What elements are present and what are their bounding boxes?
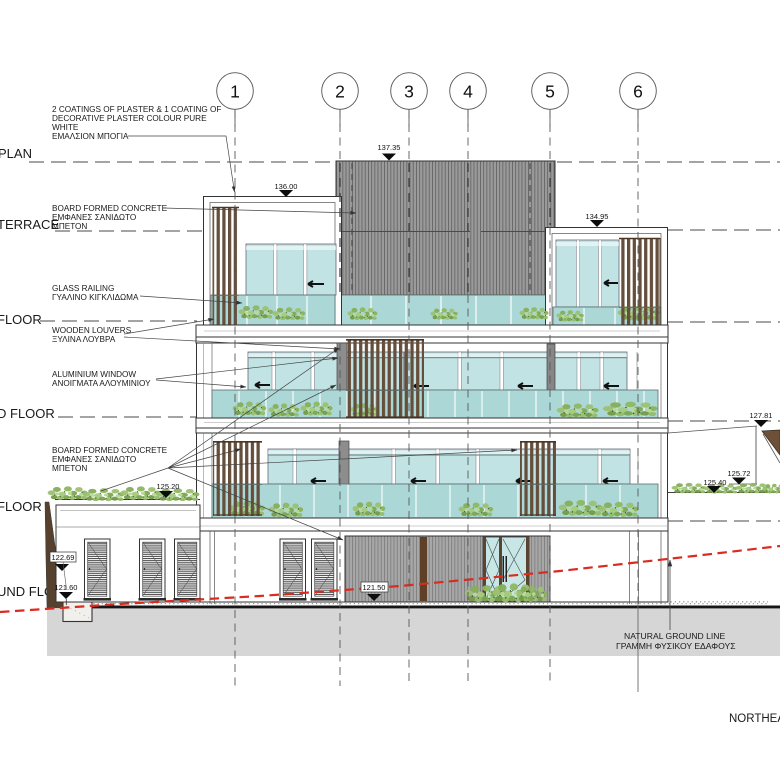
svg-text:ΕΜΦΑΝΕΣ ΣΑΝΙΔΩΤΟ: ΕΜΦΑΝΕΣ ΣΑΝΙΔΩΤΟ	[52, 455, 136, 464]
svg-text:ΓΡΑΜΜΗ ΦΥΣΙΚΟΥ ΕΔΑΦΟΥΣ: ΓΡΑΜΜΗ ΦΥΣΙΚΟΥ ΕΔΑΦΟΥΣ	[616, 641, 736, 651]
svg-text:ΜΠΕΤΟΝ: ΜΠΕΤΟΝ	[52, 222, 87, 231]
svg-text:6: 6	[633, 82, 643, 102]
svg-text:125.40: 125.40	[704, 478, 727, 487]
svg-text:D FLOOR: D FLOOR	[0, 406, 55, 421]
svg-text:5: 5	[545, 82, 555, 102]
svg-text:GLASS RAILING: GLASS RAILING	[52, 284, 114, 293]
svg-text:ΕΜΑΛΣΙΟΝ ΜΠΟΓΙΑ: ΕΜΑΛΣΙΟΝ ΜΠΟΓΙΑ	[52, 132, 129, 141]
svg-text:ΞΥΛΙΝΑ ΛΟΥΒΡΑ: ΞΥΛΙΝΑ ΛΟΥΒΡΑ	[52, 335, 116, 344]
svg-text:1: 1	[230, 82, 240, 102]
svg-text:ΑΝΟΙΓΜΑΤΑ ΑΛΟΥΜΙΝΙΟΥ: ΑΝΟΙΓΜΑΤΑ ΑΛΟΥΜΙΝΙΟΥ	[52, 379, 151, 388]
svg-text:NATURAL GROUND LINE: NATURAL GROUND LINE	[624, 631, 725, 641]
svg-text:4: 4	[463, 82, 473, 102]
svg-text:121.50: 121.50	[363, 583, 386, 592]
svg-text:122.69: 122.69	[52, 553, 75, 562]
svg-text:FLOOR: FLOOR	[0, 312, 42, 327]
svg-text:136.00: 136.00	[275, 182, 298, 191]
svg-text:3: 3	[404, 82, 414, 102]
svg-text:BOARD FORMED CONCRETE: BOARD FORMED CONCRETE	[52, 446, 168, 455]
svg-text:137.35: 137.35	[378, 143, 401, 152]
svg-text:DECORATIVE PLASTER COLOUR PURE: DECORATIVE PLASTER COLOUR PURE	[52, 114, 207, 123]
svg-text:127.81: 127.81	[750, 411, 773, 420]
svg-text:121.60: 121.60	[55, 583, 78, 592]
svg-text:BOARD FORMED CONCRETE: BOARD FORMED CONCRETE	[52, 204, 168, 213]
svg-text:PLAN: PLAN	[0, 146, 32, 161]
svg-text:WOODEN LOUVERS: WOODEN LOUVERS	[52, 326, 132, 335]
svg-text:NORTHEAST: NORTHEAST	[729, 713, 780, 725]
svg-text:WHITE: WHITE	[52, 123, 79, 132]
svg-text:125.72: 125.72	[728, 469, 751, 478]
svg-text:134.95: 134.95	[586, 212, 609, 221]
svg-text:ΕΜΦΑΝΕΣ ΣΑΝΙΔΩΤΟ: ΕΜΦΑΝΕΣ ΣΑΝΙΔΩΤΟ	[52, 213, 136, 222]
svg-text:125.20: 125.20	[157, 482, 180, 491]
svg-text:2: 2	[335, 82, 345, 102]
svg-text:ALUMINIUM WINDOW: ALUMINIUM WINDOW	[52, 370, 136, 379]
svg-text:TERRACE: TERRACE	[0, 217, 59, 232]
svg-text:2 COATINGS OF PLASTER & 1 COAT: 2 COATINGS OF PLASTER & 1 COATING OF	[52, 105, 221, 114]
svg-text:ΓΥΑΛΙΝΟ ΚΙΓΚΛΙΔΩΜΑ: ΓΥΑΛΙΝΟ ΚΙΓΚΛΙΔΩΜΑ	[52, 293, 139, 302]
svg-text:FLOOR: FLOOR	[0, 499, 42, 514]
svg-text:ΜΠΕΤΟΝ: ΜΠΕΤΟΝ	[52, 464, 87, 473]
